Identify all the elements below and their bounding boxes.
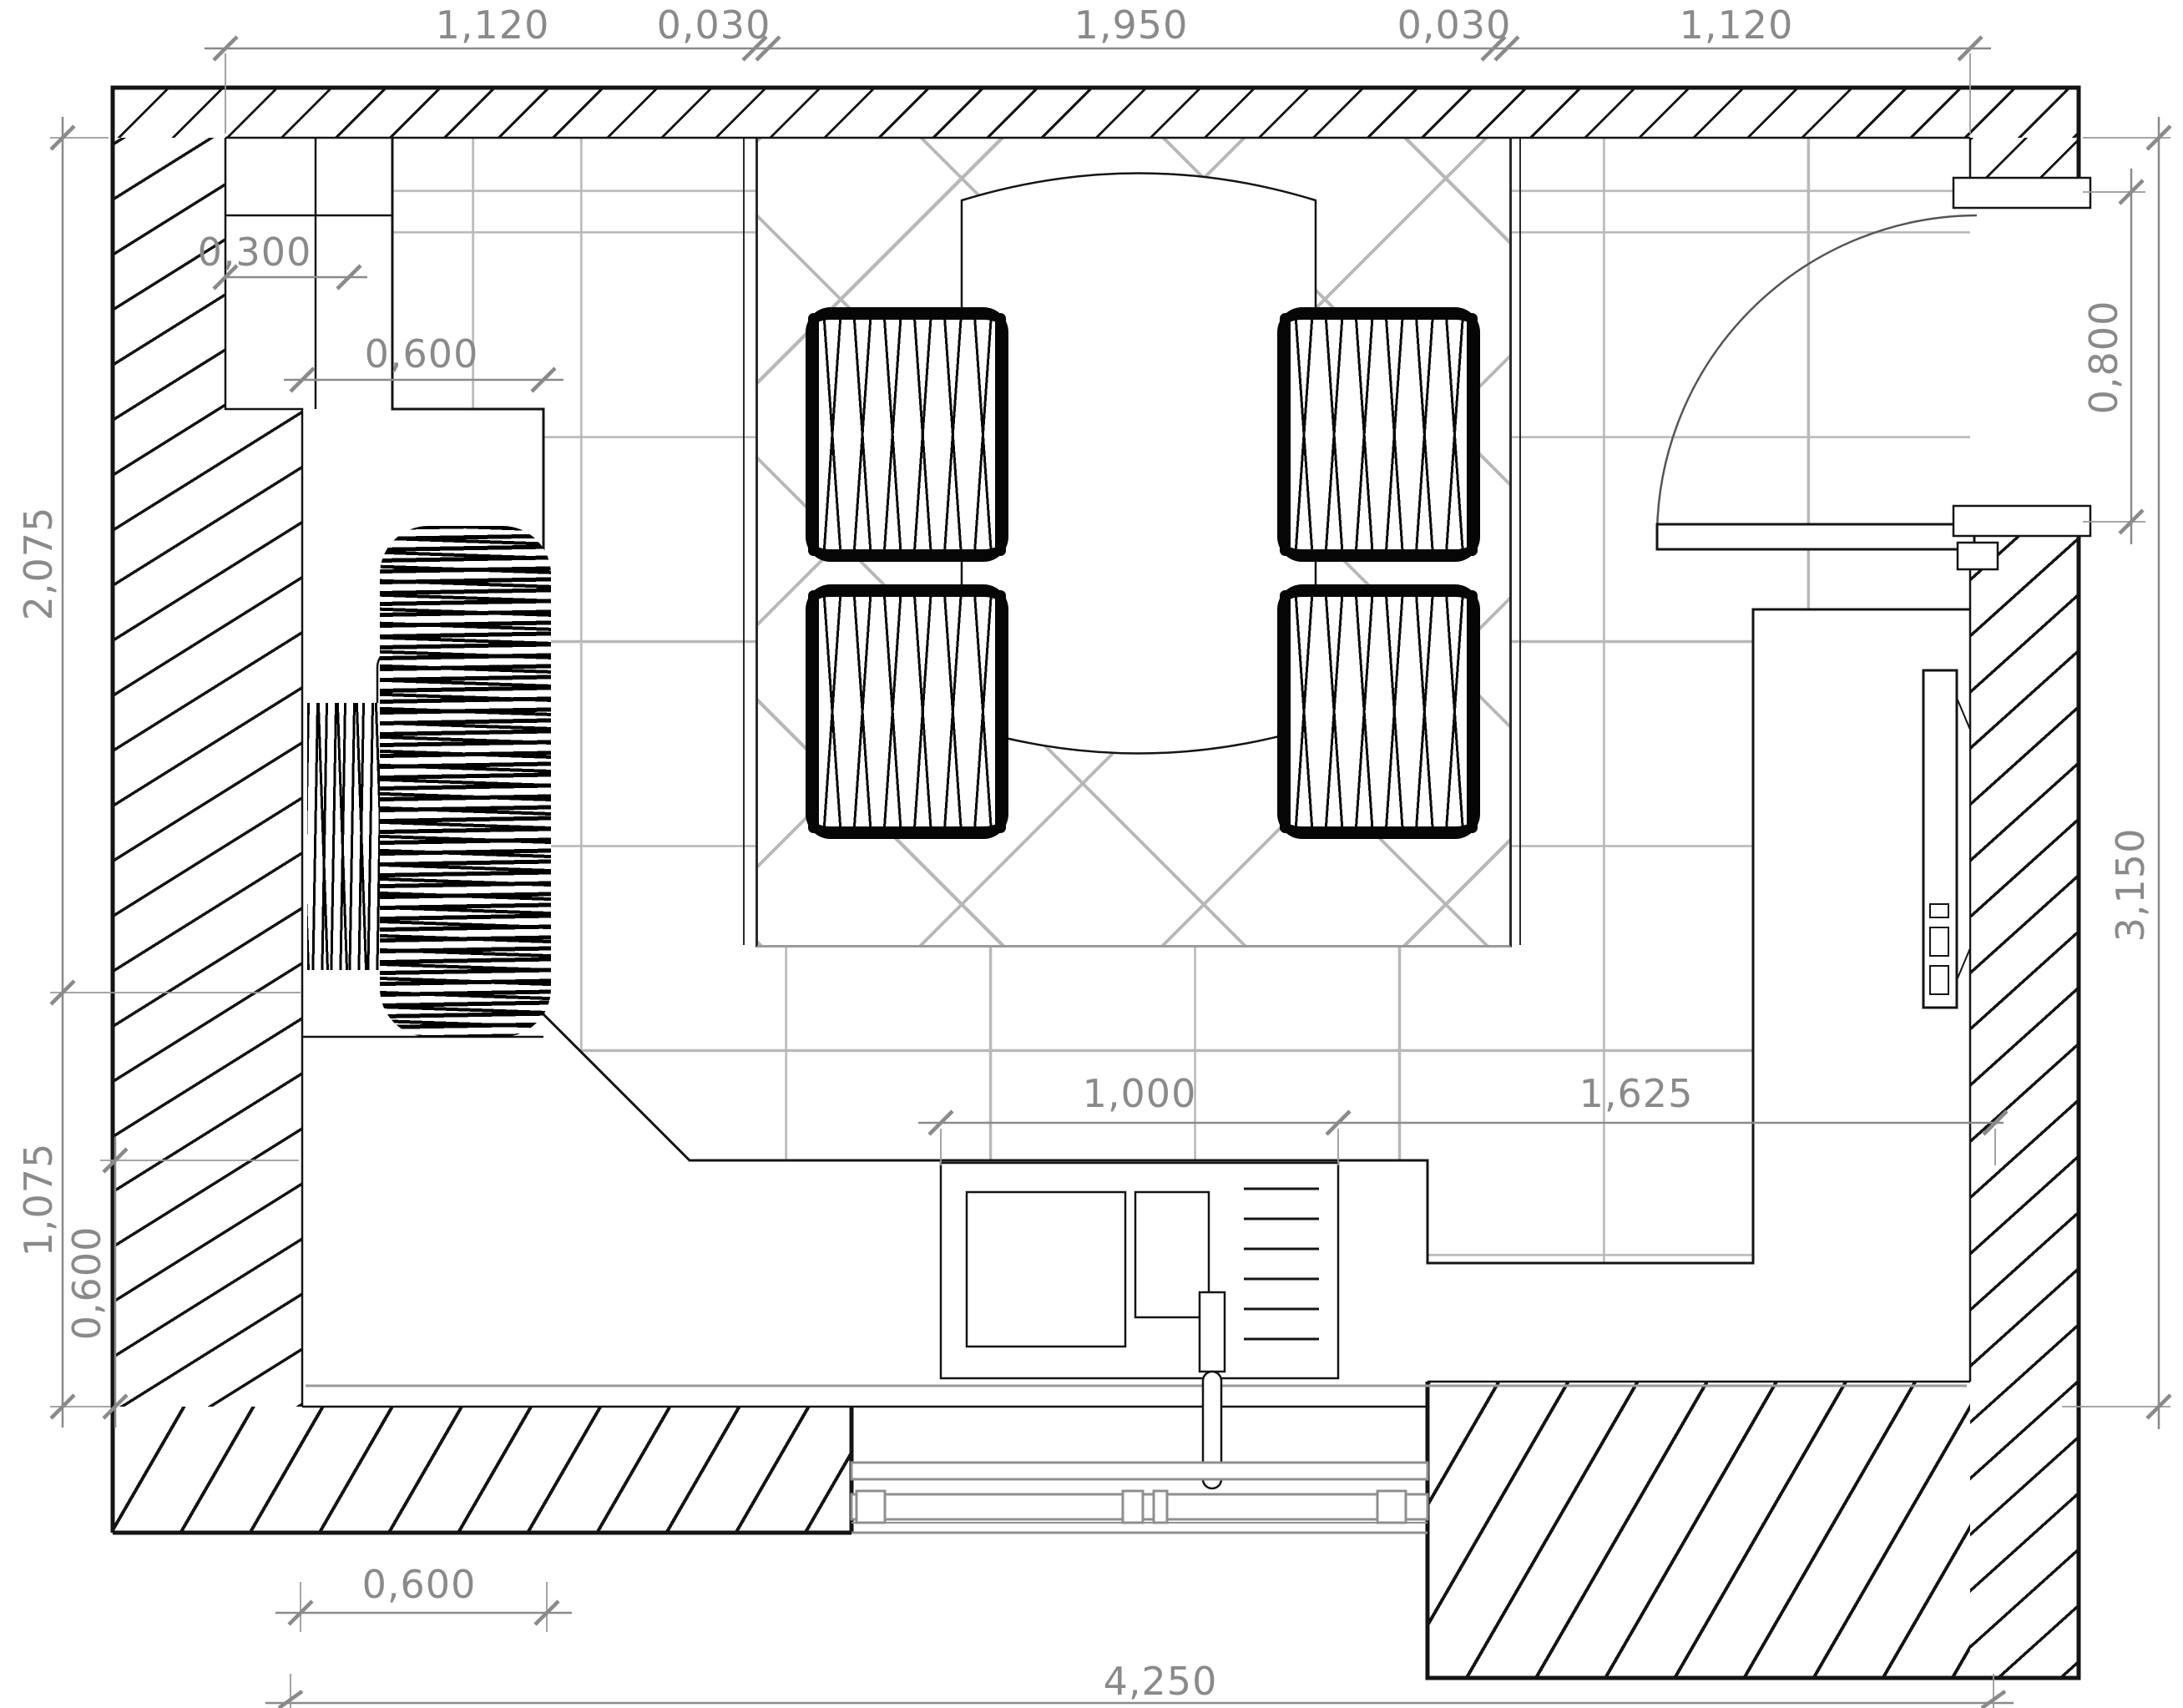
- panel-vent-3: [1930, 966, 1948, 994]
- dim-top-3: 1,950: [1074, 3, 1189, 48]
- dim-top-1: 1,120: [436, 3, 550, 48]
- sink-faucet-base: [1200, 1292, 1225, 1372]
- window-mullion-a: [1123, 1491, 1143, 1523]
- dim-room-width: 4,250: [1104, 1659, 1218, 1704]
- chair-armrest: [1467, 590, 1478, 833]
- sink-basin-small: [1135, 1192, 1209, 1317]
- sink-basin-large: [967, 1192, 1125, 1347]
- wall-mounted-panel: [1923, 670, 1970, 1008]
- dim-left-height-lower: 1,075: [16, 1143, 61, 1257]
- window-glazing-bar-1: [851, 1463, 1428, 1479]
- dining-chair-top-left: [806, 307, 1008, 562]
- chair-armrest: [808, 313, 819, 556]
- dim-cabinet-depth: 0,300: [198, 230, 312, 275]
- dim-bottom-cabinet: 0,600: [362, 1562, 477, 1607]
- dim-counter-depth: 0,600: [365, 331, 479, 376]
- door-leaf: [1657, 524, 1974, 549]
- dim-counter-run: 1,625: [1579, 1071, 1694, 1116]
- door-frame-bottom: [1953, 506, 2090, 536]
- chair-armrest: [1467, 313, 1478, 556]
- dim-top-5: 1,120: [1680, 3, 1794, 48]
- window-bottom: [851, 1463, 1428, 1533]
- door-frame-top: [1953, 178, 2090, 208]
- dim-door-width: 0,800: [2081, 301, 2126, 415]
- cooktop: [380, 526, 551, 1037]
- dim-sink-width: 1,000: [1083, 1071, 1197, 1116]
- dim-room-depth: 3,150: [2108, 828, 2153, 942]
- dim-top-4: 0,030: [1397, 3, 1512, 48]
- panel-vent-2: [1930, 927, 1948, 956]
- entry-door: [1657, 178, 2090, 569]
- panel-vent-1: [1930, 904, 1948, 917]
- chair-armrest: [995, 590, 1006, 833]
- window-jamb-right: [1377, 1491, 1406, 1523]
- dining-chair-bottom-left: [806, 584, 1008, 839]
- chair-armrest: [995, 313, 1006, 556]
- dim-left-counter-depth: 0,600: [64, 1226, 109, 1341]
- window-jamb-left: [857, 1491, 885, 1523]
- dining-chair-bottom-right: [1277, 584, 1480, 839]
- chair-armrest: [808, 590, 819, 833]
- door-hinge-block: [1958, 543, 1998, 569]
- sink-unit: [941, 1163, 1338, 1488]
- dining-table: [962, 174, 1316, 754]
- panel-body: [1923, 670, 1957, 1008]
- cooktop-left-section: [307, 703, 382, 970]
- chair-armrest: [1280, 590, 1291, 833]
- dining-chair-top-right: [1277, 307, 1480, 562]
- chair-armrest: [1280, 313, 1291, 556]
- panel-bracket: [1957, 698, 1970, 980]
- door-swing-arc: [1657, 215, 1977, 537]
- dim-left-height-upper: 2,075: [16, 507, 61, 621]
- window-mullion-b: [1154, 1491, 1167, 1523]
- dim-top-2: 0,030: [657, 3, 771, 48]
- floor-plan-canvas: 1,120 0,030 1,950 0,030 1,120 2,075 1,07…: [0, 0, 2183, 1708]
